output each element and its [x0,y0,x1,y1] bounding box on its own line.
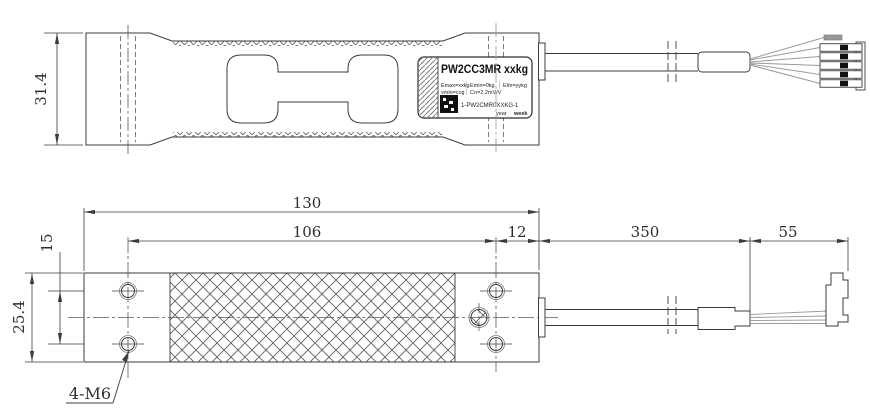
cable-break-marks-bottom [668,296,676,334]
drawing-canvas: 31.4 PW2CC3MR xxkg Emax [0,0,870,409]
cable-sleeve-top [698,52,750,72]
connector-top-view [820,35,865,90]
label-serial-code: 1-PW2CMR0XXKG-1 [461,103,519,109]
thread-callout-text: 4-M6 [69,384,111,403]
dim-top-height: 31.4 [32,72,50,105]
dim-body-width: 25.4 [10,300,28,333]
dim-hole-pitch: 15 [38,233,56,252]
label-emax: Emax=xxkg [441,83,470,89]
bottom-view: 130 106 12 350 55 15 25.4 [10,194,848,403]
dim-cable-length: 350 [631,223,660,241]
product-label: PW2CC3MR xxkg Emax=xxkg Emin=0kg Elm=yyk… [418,57,532,118]
label-year: year [496,111,507,117]
wire-fan-top [750,38,824,84]
dim-31-4: 31.4 [32,33,83,145]
serration-top [173,42,442,47]
cable-bottom-view [539,296,751,337]
connector-bottom-view [826,273,848,326]
hole-center-sealed [469,308,489,328]
dim-wire-length: 55 [778,223,797,241]
crimp-terminals [820,44,862,88]
label-model: PW2CC3MR xxkg [441,64,528,76]
load-cell-drawing: 31.4 PW2CC3MR xxkg Emax [0,0,870,409]
label-emin: Emin=0kg [470,83,495,89]
serration-bottom [173,132,442,137]
strain-relief-top [539,43,546,80]
label-hologram-strip [418,57,438,118]
wire-fan-bottom [750,311,828,324]
top-view: 31.4 PW2CC3MR xxkg Emax [32,23,865,155]
cable-sleeve-bottom [698,308,750,330]
cable-break-marks-top [668,41,676,84]
label-cn: Cn=2.2mV/V [470,90,502,96]
label-week: week [513,111,528,117]
strain-relief-bottom [539,298,546,337]
dim-hole-span: 106 [293,223,322,241]
qr-code-icon [440,95,458,113]
wire-ferrule [824,35,842,40]
dim-overall-length: 130 [293,194,322,212]
cable-top-view [539,41,751,84]
dim-hole-to-end: 12 [507,223,526,241]
label-elm: Elm=yykg [503,83,527,89]
